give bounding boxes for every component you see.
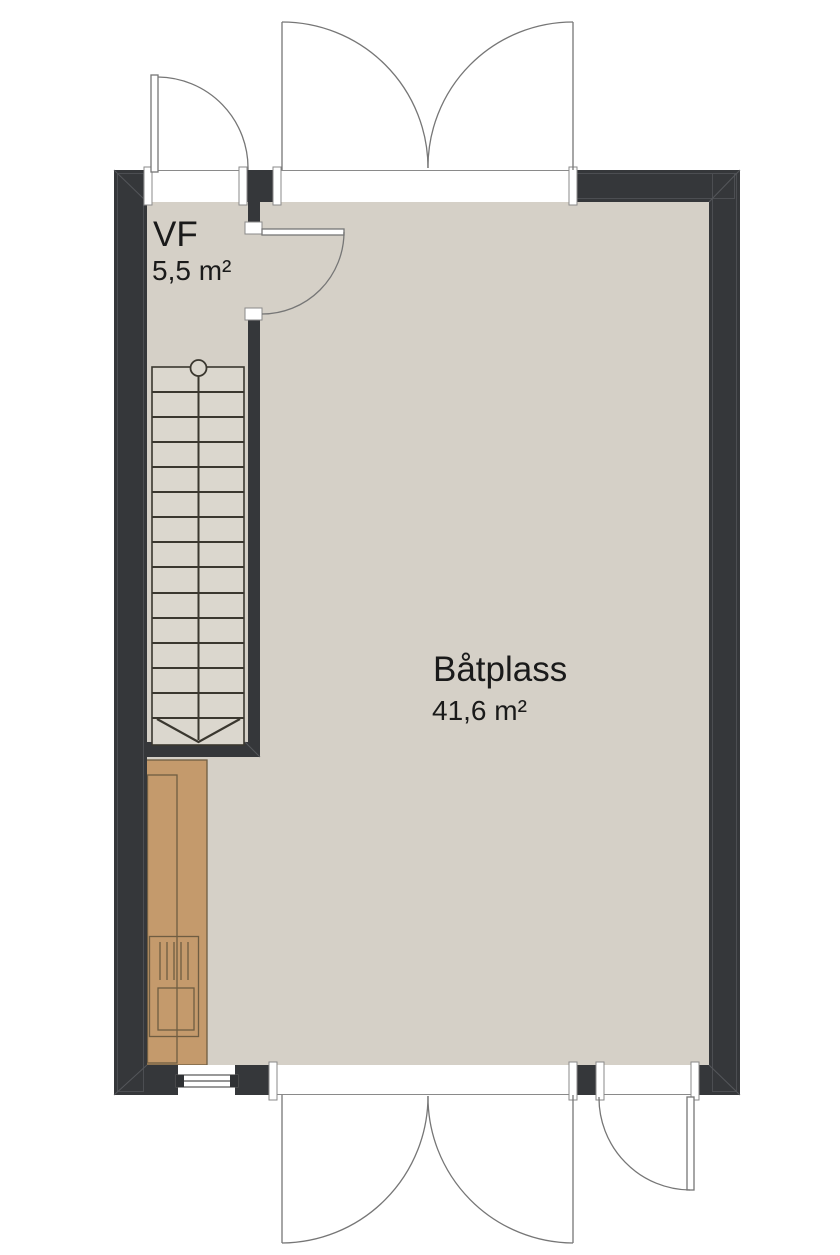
room-area-batplass: 41,6 m² xyxy=(432,697,527,725)
wall-top-right xyxy=(573,170,713,202)
wall-top-pier xyxy=(244,170,277,202)
wall-bottom-b xyxy=(235,1065,273,1095)
room-area-vf: 5,5 m² xyxy=(152,257,231,285)
window-cap-left xyxy=(176,1075,184,1087)
room-name-batplass: Båtplass xyxy=(433,652,567,687)
exit-door-swing xyxy=(599,1097,694,1190)
wall-bottom-a xyxy=(147,1065,178,1095)
floor-plan: VF 5,5 m² Båtplass 41,6 m² xyxy=(0,0,840,1255)
wall-interior-lower xyxy=(248,315,260,742)
staircase xyxy=(152,360,244,745)
wall-left xyxy=(114,170,147,1095)
window-cap-right xyxy=(230,1075,238,1087)
floor-plan-drawing xyxy=(0,0,840,1255)
kitchen-counter xyxy=(145,760,207,1065)
double-door-bottom-swing xyxy=(282,1095,573,1243)
room-name-vf: VF xyxy=(153,217,198,252)
vf-entry-door-swing xyxy=(151,75,248,172)
double-door-top-swing xyxy=(282,22,573,170)
wall-right xyxy=(709,170,740,1095)
window-symbol xyxy=(176,1065,238,1095)
newel-post-circle xyxy=(191,360,207,376)
counter-base xyxy=(145,760,207,1065)
